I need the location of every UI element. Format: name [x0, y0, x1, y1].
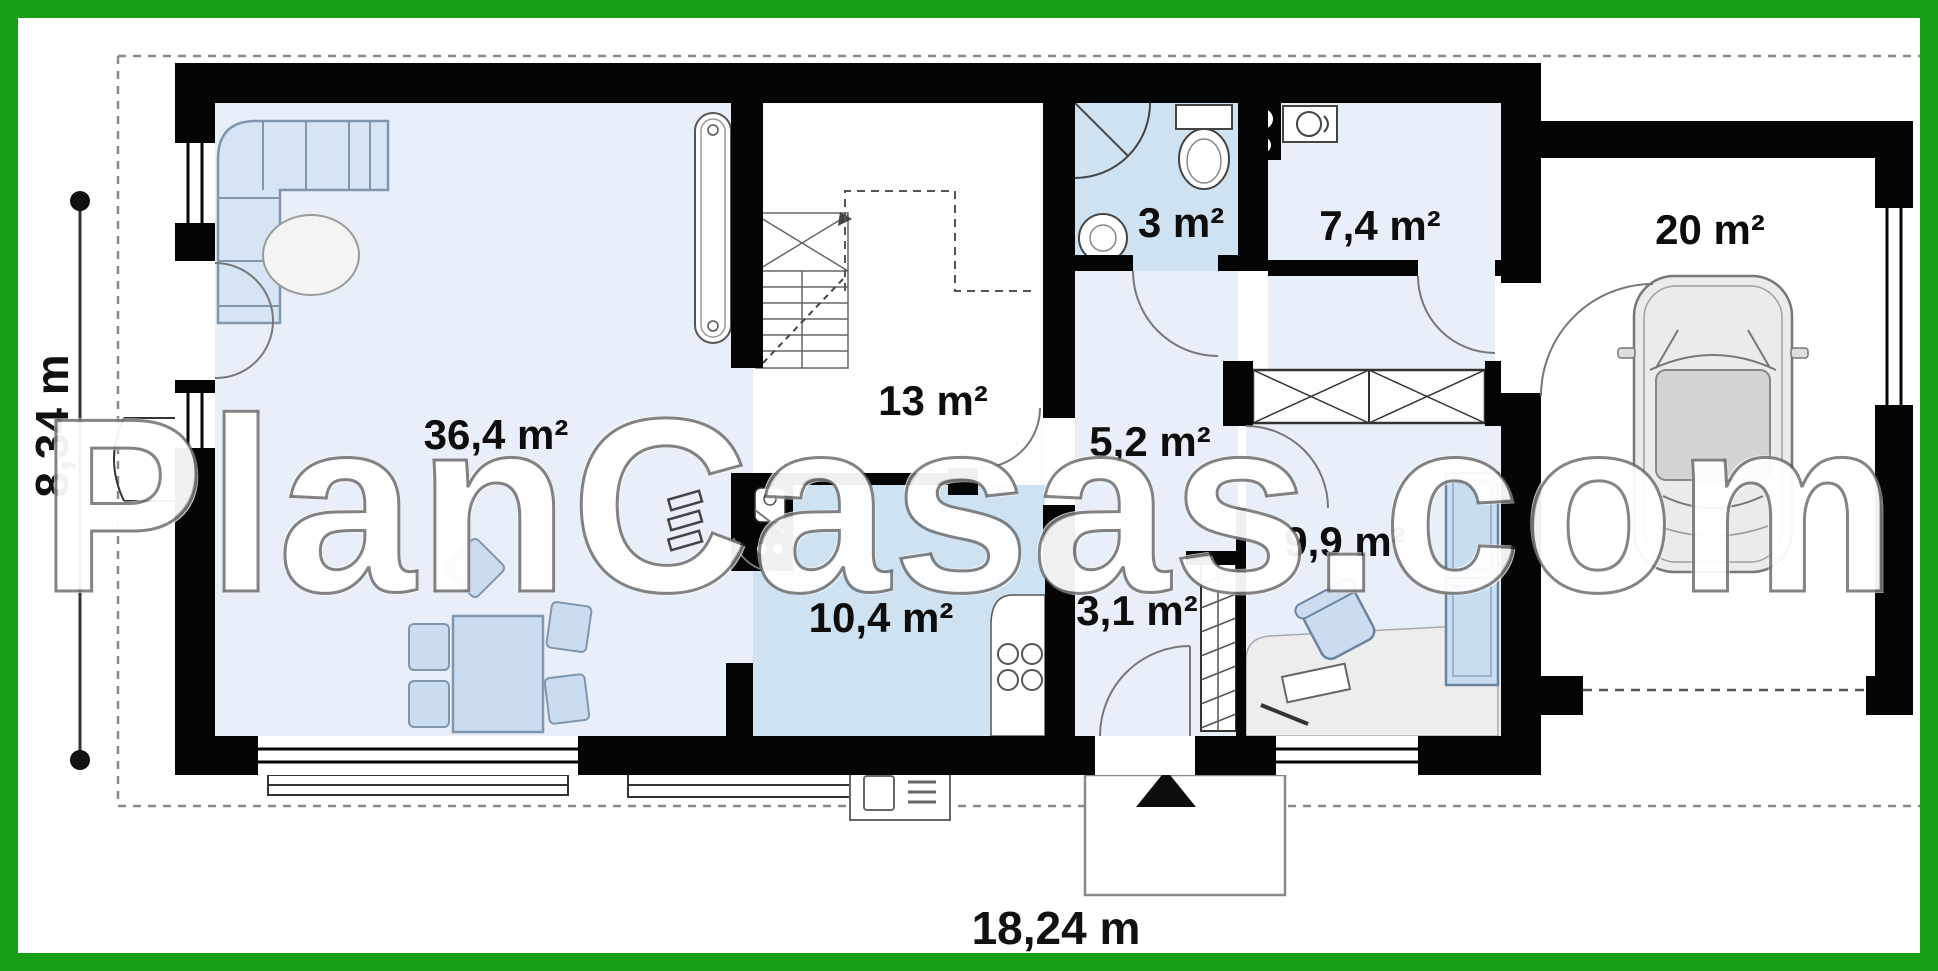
kitchen-counter-right — [991, 595, 1045, 736]
built-in-closet — [1253, 370, 1485, 423]
chair — [409, 624, 449, 670]
washing-machine-icon — [1283, 106, 1337, 142]
window-office-bottom — [1276, 736, 1418, 775]
dimension-width-label: 18,24 m — [972, 901, 1141, 955]
entry-cabinet — [1201, 563, 1236, 731]
entrance-porch — [1085, 775, 1285, 895]
terrace-threshold-left — [114, 418, 175, 501]
room-label-utility: 7,4 m² — [1319, 202, 1440, 250]
wall-hall-corridor-stub — [1043, 505, 1075, 571]
car — [1618, 276, 1808, 572]
room-label-office: 9,9 m² — [1284, 518, 1405, 566]
room-label-hall: 13 m² — [878, 377, 988, 425]
room-label-bathroom: 3 m² — [1138, 199, 1224, 247]
wall-utility-bottom-stub — [1495, 260, 1541, 276]
dimension-height-label: 8,34 m — [25, 354, 79, 497]
garage-door-opening-from-utility — [1501, 283, 1541, 393]
window-left-1 — [175, 143, 215, 223]
wall-office-left — [1236, 508, 1246, 736]
window-garage-right — [1875, 208, 1913, 405]
room-label-living: 36,4 m² — [424, 411, 569, 459]
dining-table — [453, 616, 543, 732]
wall-closet-stub-right — [1485, 361, 1501, 426]
wall-garage-door-stub-right — [1866, 676, 1913, 715]
wall-kitchen-top — [791, 473, 948, 485]
floor-plan-drawing — [18, 18, 1938, 971]
radiator-icon — [668, 491, 702, 550]
corridor-floor-upper — [1268, 276, 1495, 373]
wall-outer-top — [175, 63, 1541, 103]
rug — [263, 215, 359, 295]
wardrobe — [1446, 473, 1498, 685]
toilet-icon — [1176, 105, 1232, 189]
wall-kitchen-entry — [1045, 571, 1075, 736]
wall-bath-bottom — [1043, 255, 1133, 271]
wall-garage-door-stub-left — [1541, 676, 1583, 715]
room-label-kitchen: 10,4 m² — [809, 594, 954, 642]
washbasin-icon — [1079, 214, 1127, 262]
entry-door-opening — [1095, 736, 1195, 775]
corridor-floor — [1075, 271, 1238, 558]
room-label-garage: 20 m² — [1655, 206, 1765, 254]
chair — [409, 681, 449, 727]
room-label-entry: 3,1 m² — [1076, 587, 1197, 635]
window-living-bottom — [258, 736, 578, 775]
wall-utility-bottom — [1268, 260, 1418, 276]
room-label-corridor: 5,2 m² — [1089, 418, 1210, 466]
terrace-step-living — [268, 775, 568, 795]
car-mirror — [1618, 348, 1635, 358]
wall-stub — [948, 468, 978, 495]
floor-plan: 36,4 m² 13 m² 3 m² 7,4 m² 20 m² 5,2 m² 9… — [0, 0, 1938, 971]
wall-closet-stub-left — [1223, 361, 1253, 426]
wall-bath-bottom-stub — [1218, 255, 1268, 271]
wall-stairs — [731, 103, 763, 368]
window-left-2 — [175, 393, 215, 448]
car-mirror — [1791, 348, 1808, 358]
wall-house-garage — [1501, 63, 1541, 775]
chair — [544, 674, 589, 725]
french-door-opening — [175, 261, 215, 380]
wall-kitchen-left-lower — [726, 663, 753, 736]
wall-garage-top — [1541, 121, 1913, 158]
wall-corridor-entry — [1186, 551, 1240, 565]
chair — [546, 601, 592, 652]
wall-bath-utility — [1238, 103, 1268, 271]
fireplace — [695, 113, 731, 343]
